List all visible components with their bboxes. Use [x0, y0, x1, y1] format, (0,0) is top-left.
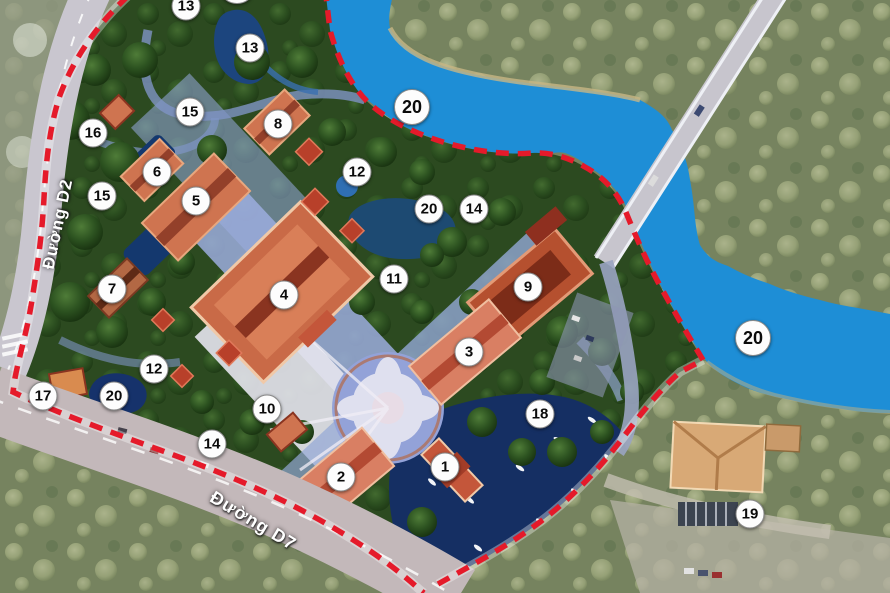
marker-17: 17 [29, 382, 58, 411]
marker-16: 16 [79, 119, 108, 148]
site-plan-image: 13 13 15 16 8 20 12 6 5 15 20 14 12 7 4 … [0, 0, 890, 593]
marker-10: 10 [253, 395, 282, 424]
marker-15: 15 [176, 98, 205, 127]
marker-5: 5 [182, 187, 211, 216]
marker-12: 12 [343, 158, 372, 187]
marker-8: 8 [264, 110, 293, 139]
marker-3: 3 [455, 338, 484, 367]
marker-11: 11 [380, 265, 409, 294]
marker-14: 14 [198, 430, 227, 459]
marker-15: 15 [88, 182, 117, 211]
mist-tree [13, 23, 47, 57]
parking-lot [678, 502, 738, 526]
marker-9: 9 [514, 273, 543, 302]
marker-2: 2 [327, 463, 356, 492]
marker-20-river-north: 20 [394, 89, 430, 125]
marker-13: 13 [236, 34, 265, 63]
marker-14: 14 [460, 195, 489, 224]
marker-19: 19 [736, 500, 765, 529]
marker-7: 7 [98, 275, 127, 304]
marker-6: 6 [143, 158, 172, 187]
marker-4: 4 [270, 281, 299, 310]
marker-20: 20 [100, 382, 129, 411]
marker-20: 20 [415, 195, 444, 224]
marker-20-river-east: 20 [735, 320, 771, 356]
marker-1: 1 [431, 453, 460, 482]
marker-18: 18 [526, 400, 555, 429]
marker-12: 12 [140, 355, 169, 384]
